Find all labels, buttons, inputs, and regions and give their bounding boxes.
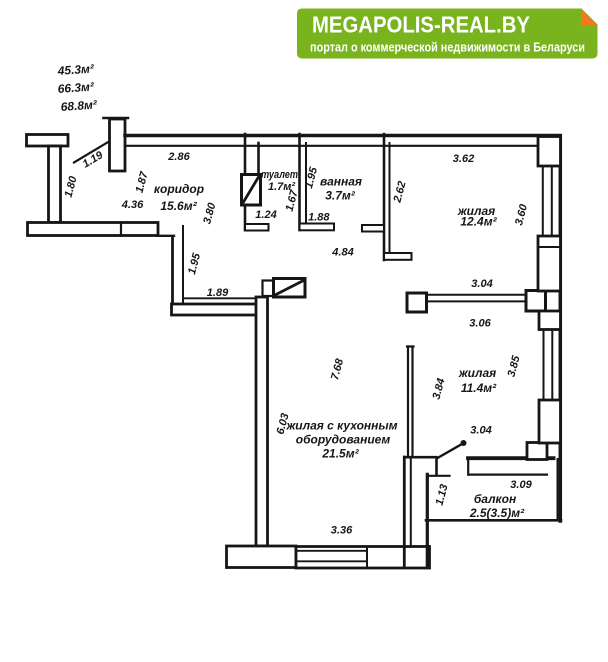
svg-text:1.89: 1.89 [207,287,229,299]
svg-text:оборудованием: оборудованием [296,433,391,447]
svg-text:MEGAPOLIS-REAL.BY: MEGAPOLIS-REAL.BY [312,12,530,38]
svg-text:3.04: 3.04 [470,425,491,437]
svg-text:1.88: 1.88 [308,212,330,224]
svg-text:21.5м²: 21.5м² [321,447,359,461]
svg-text:жилая с кухонным: жилая с кухонным [285,419,397,433]
svg-text:портал о коммерческой недвижим: портал о коммерческой недвижимости в Бел… [310,40,585,55]
svg-text:4.36: 4.36 [121,199,144,211]
svg-text:3.06: 3.06 [469,318,491,330]
svg-text:4.84: 4.84 [331,247,353,259]
svg-text:коридор: коридор [154,182,204,196]
svg-text:ванная: ванная [320,175,362,189]
svg-text:3.09: 3.09 [510,479,532,491]
svg-text:балкон: балкон [474,492,517,506]
svg-text:3.04: 3.04 [471,278,492,290]
svg-text:2.5(3.5)м²: 2.5(3.5)м² [469,506,525,520]
svg-text:12.4м²: 12.4м² [460,215,497,229]
svg-text:66.3м²: 66.3м² [57,79,95,96]
svg-text:68.8м²: 68.8м² [60,97,98,114]
svg-text:2.86: 2.86 [167,151,190,163]
svg-text:3.7м²: 3.7м² [325,189,356,203]
svg-text:45.3м²: 45.3м² [56,61,95,78]
svg-text:11.4м²: 11.4м² [461,381,497,395]
svg-text:3.62: 3.62 [453,153,474,165]
svg-text:1.24: 1.24 [255,209,276,221]
svg-text:туалет: туалет [261,169,298,181]
svg-text:3.36: 3.36 [331,525,353,537]
svg-text:15.6м²: 15.6м² [160,199,197,213]
svg-text:жилая: жилая [458,366,496,380]
